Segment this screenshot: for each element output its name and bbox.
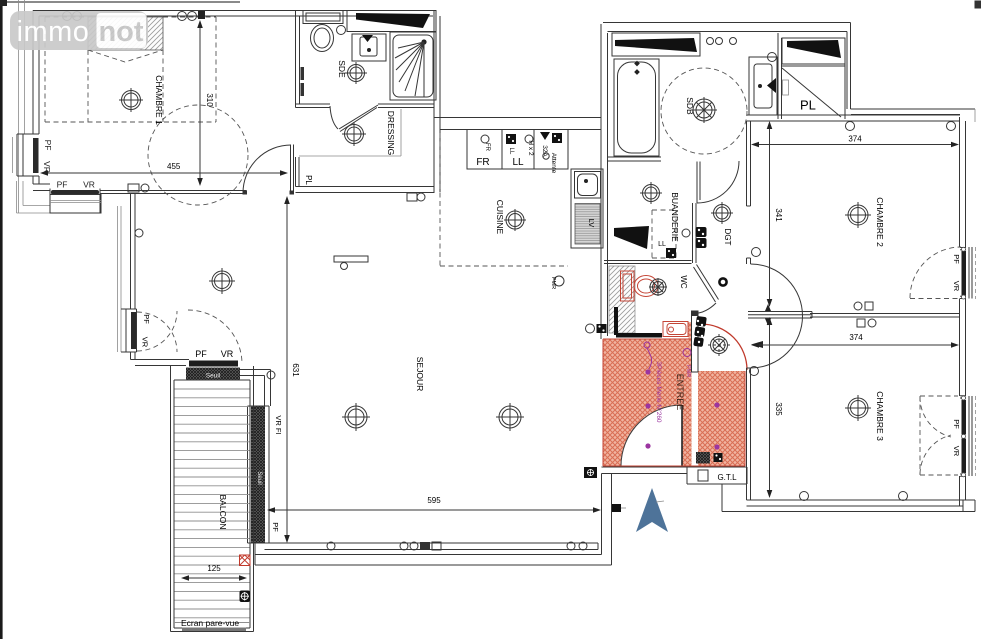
svg-text:PF: PF	[952, 419, 961, 429]
svg-text:VR: VR	[141, 337, 150, 348]
svg-text:CHAMBRE 2: CHAMBRE 2	[875, 197, 885, 247]
svg-text:374: 374	[848, 135, 862, 144]
svg-text:335: 335	[774, 402, 783, 416]
svg-text:341: 341	[774, 208, 783, 222]
svg-text:VR: VR	[83, 180, 95, 190]
svg-text:455: 455	[167, 162, 181, 171]
svg-text:32A: 32A	[541, 145, 548, 157]
svg-text:CHAMBRE 1: CHAMBRE 1	[154, 75, 164, 125]
svg-text:LL: LL	[658, 241, 666, 248]
svg-text:PMR: PMR	[685, 365, 691, 377]
svg-text:PF: PF	[57, 180, 68, 190]
svg-text:PL: PL	[800, 98, 816, 113]
svg-text:PF: PF	[142, 314, 151, 324]
svg-text:BALCON: BALCON	[218, 495, 228, 530]
svg-text:Seuil: Seuil	[256, 471, 262, 484]
svg-text:VR: VR	[952, 281, 961, 292]
svg-text:not: not	[98, 16, 143, 48]
svg-text:VR FI: VR FI	[274, 415, 283, 434]
svg-text:VR: VR	[221, 349, 234, 359]
svg-text:LV: LV	[587, 219, 596, 228]
svg-text:DRESSING: DRESSING	[386, 111, 396, 155]
svg-text:DGT: DGT	[723, 229, 732, 246]
svg-text:Seuil: Seuil	[206, 373, 221, 380]
svg-text:PMR: PMR	[550, 277, 556, 289]
svg-text:VR: VR	[952, 446, 961, 457]
svg-text:PF: PF	[43, 140, 53, 151]
svg-text:ENTREE: ENTREE	[675, 374, 685, 411]
svg-text:PF: PF	[271, 522, 280, 532]
svg-text:G.T.L: G.T.L	[717, 473, 737, 482]
svg-text:Attente: Attente	[550, 153, 557, 174]
svg-text:PL: PL	[304, 175, 313, 185]
svg-text:125: 125	[207, 564, 221, 573]
svg-text:LL: LL	[512, 157, 524, 168]
svg-text:LL: LL	[508, 148, 514, 155]
svg-text:SDE: SDE	[337, 60, 347, 78]
svg-text:PF: PF	[195, 349, 207, 359]
svg-text:310: 310	[205, 93, 214, 107]
svg-text:CHAMBRE 3: CHAMBRE 3	[875, 391, 885, 441]
svg-text:374: 374	[849, 333, 863, 342]
svg-text:631: 631	[291, 363, 300, 377]
svg-text:595: 595	[427, 496, 441, 505]
svg-text:CUISINE: CUISINE	[495, 200, 505, 235]
svg-text:3Pièces Merle N°260: 3Pièces Merle N°260	[655, 361, 663, 423]
svg-text:immo: immo	[17, 16, 90, 48]
svg-text:FR: FR	[484, 143, 490, 152]
svg-text:PF: PF	[952, 254, 961, 264]
svg-text:FR: FR	[476, 157, 489, 168]
svg-text:WC: WC	[679, 275, 688, 289]
svg-text:SEJOUR: SEJOUR	[415, 357, 425, 391]
svg-text:BUANDERIE: BUANDERIE	[670, 192, 680, 242]
svg-text:Ecran pare-vue: Ecran pare-vue	[181, 618, 239, 628]
